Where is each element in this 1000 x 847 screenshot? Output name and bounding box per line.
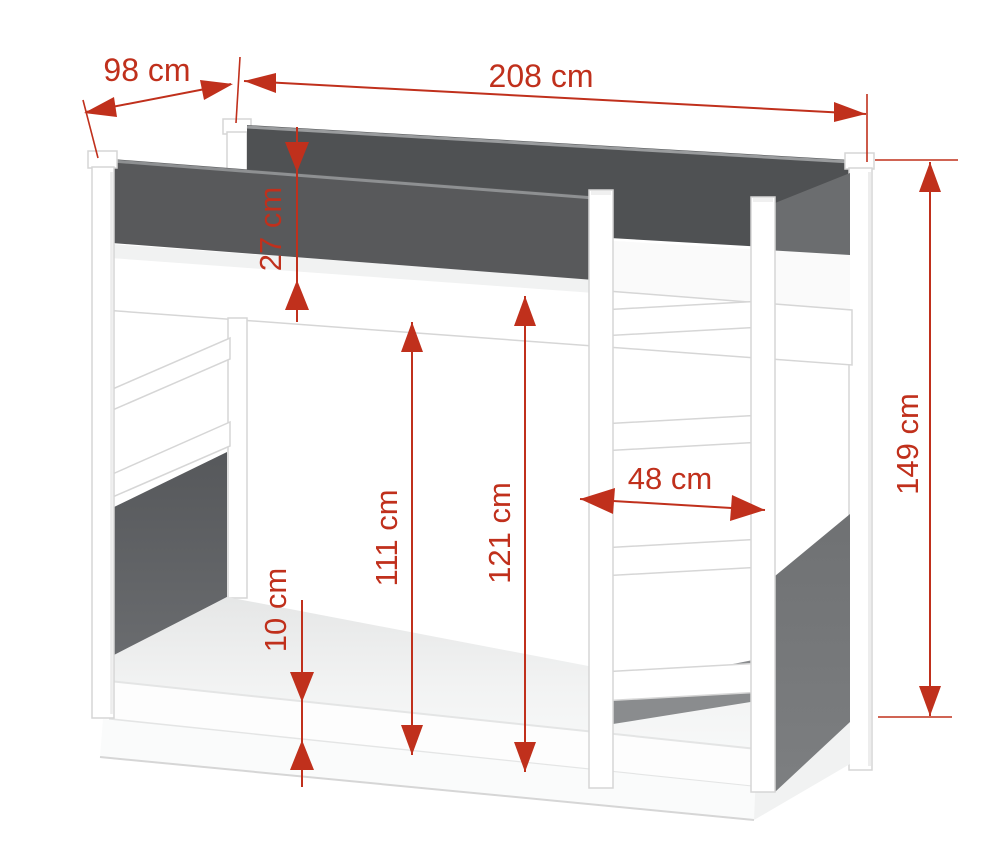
dimension-total-height: 149 cm: [875, 160, 958, 717]
bed-dimension-diagram: 98 cm 208 cm 27 cm 111 cm 121 cm 10 cm: [0, 0, 1000, 847]
dim-98-label: 98 cm: [103, 52, 190, 88]
back-left-post-lower: [228, 318, 247, 598]
dim-48-label: 48 cm: [628, 461, 712, 496]
dim-27-label: 27 cm: [253, 187, 288, 271]
dim-10-label: 10 cm: [258, 568, 293, 652]
dim-111-label: 111 cm: [369, 489, 404, 586]
dimension-depth: 98 cm: [83, 52, 240, 158]
bed-illustration: [88, 119, 874, 820]
dim-149-label: 149 cm: [890, 393, 925, 495]
front-left-post: [88, 151, 117, 718]
dim-121-label: 121 cm: [482, 482, 517, 584]
dim-208-label: 208 cm: [489, 58, 594, 94]
